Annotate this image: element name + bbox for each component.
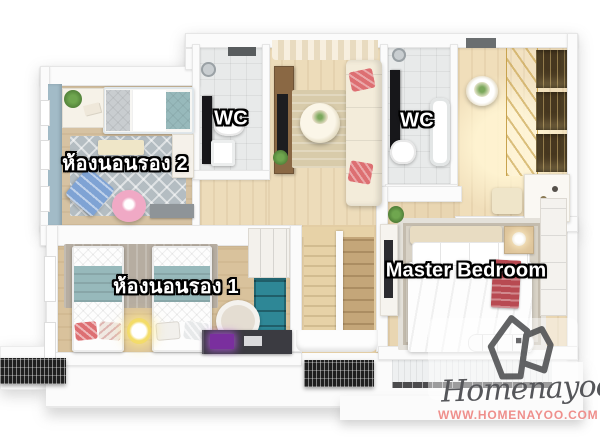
bedroom1-window [44, 256, 56, 302]
hall-sofa-pillow-bottom [347, 160, 373, 185]
wc-left-sink [211, 140, 235, 166]
facade-louver-grille-center [304, 360, 374, 387]
vanity-cosmetics [552, 186, 558, 192]
bedroom2-pink-pouf [112, 190, 146, 222]
wardrobe-cubby [536, 50, 567, 88]
wc-right-shower-head [392, 48, 406, 62]
brand-name: Homenayoo [440, 369, 593, 409]
wall-wc-right-east [450, 44, 458, 192]
bed2-quilt-top [154, 248, 210, 266]
wc-left-shower-head [201, 62, 216, 77]
wall-bedroom2-top [40, 66, 200, 86]
closet-ottoman [492, 188, 522, 214]
wc-right-shower-panel [390, 70, 400, 150]
bedroom2-window [40, 100, 50, 126]
facade-louver-grille-left [0, 358, 66, 384]
wall-bedroom1-south [46, 352, 302, 366]
wc-left-ceiling-vent [228, 47, 256, 56]
bedroom2-bed-pillows [166, 92, 190, 129]
label-wc-left: WC [214, 108, 248, 131]
stairs-railing-cover [296, 330, 378, 352]
stairs-right-flight [343, 237, 374, 335]
master-lamp [512, 232, 526, 246]
brand-website: WWW.HOMENAYOO.COM [438, 408, 594, 422]
hall-curtains [272, 40, 378, 60]
bedroom1-wardrobe [248, 228, 290, 278]
master-plant [388, 206, 404, 223]
label-wc-right: WC [400, 110, 434, 133]
bed2-pillow [155, 321, 180, 341]
house-icon-window [516, 338, 521, 343]
bed1-pillow [98, 321, 121, 341]
bedroom2-window [40, 186, 50, 212]
bedroom2-window [40, 140, 50, 170]
bed1-pillow [74, 321, 98, 341]
hall-floor-wc-door-area [200, 178, 268, 232]
closet-ceiling-vent [466, 38, 496, 48]
hall-tv-screen [277, 94, 288, 156]
bedroom2-accent-wall [48, 84, 62, 228]
wall-master-top-left [378, 186, 462, 202]
bed1-quilt-top [74, 248, 122, 266]
label-bedroom2: ห้องนอนรอง 2 [62, 147, 188, 179]
closet-table-flowers [474, 82, 490, 97]
bed2-quilt-bottom [154, 302, 210, 322]
wall-wc-left-east [262, 44, 270, 178]
bedroom2-bed-duvet [132, 90, 166, 131]
floorplan-render: ห้องนอนรอง 2 WC WC ห้องนอนรอง 1 Master B… [0, 0, 600, 441]
label-master-bedroom: Master Bedroom [386, 260, 547, 283]
wc-right-toilet [390, 140, 416, 164]
label-bedroom1: ห้องนอนรอง 1 [113, 270, 239, 302]
hall-plant [273, 150, 288, 165]
hall-table-flowers [312, 110, 328, 124]
bedroom2-low-shelf [150, 204, 194, 218]
master-wardrobe [540, 198, 567, 316]
bed1-quilt-bottom [74, 302, 122, 322]
bedroom2-bed-blanket [106, 90, 130, 131]
bedroom1-desk-pc [210, 334, 234, 349]
wall-wc-left-south [192, 170, 270, 180]
closet-glass-partition [506, 48, 538, 176]
bedroom1-night-lamp [127, 318, 151, 344]
bedroom1-desk-keyboard [244, 336, 262, 346]
bedroom2-plant [64, 90, 82, 108]
stairs-left-flight [304, 237, 337, 335]
wardrobe-cubby [536, 134, 567, 172]
wardrobe-cubby [536, 92, 567, 130]
stairs-center-stringer [336, 231, 343, 339]
